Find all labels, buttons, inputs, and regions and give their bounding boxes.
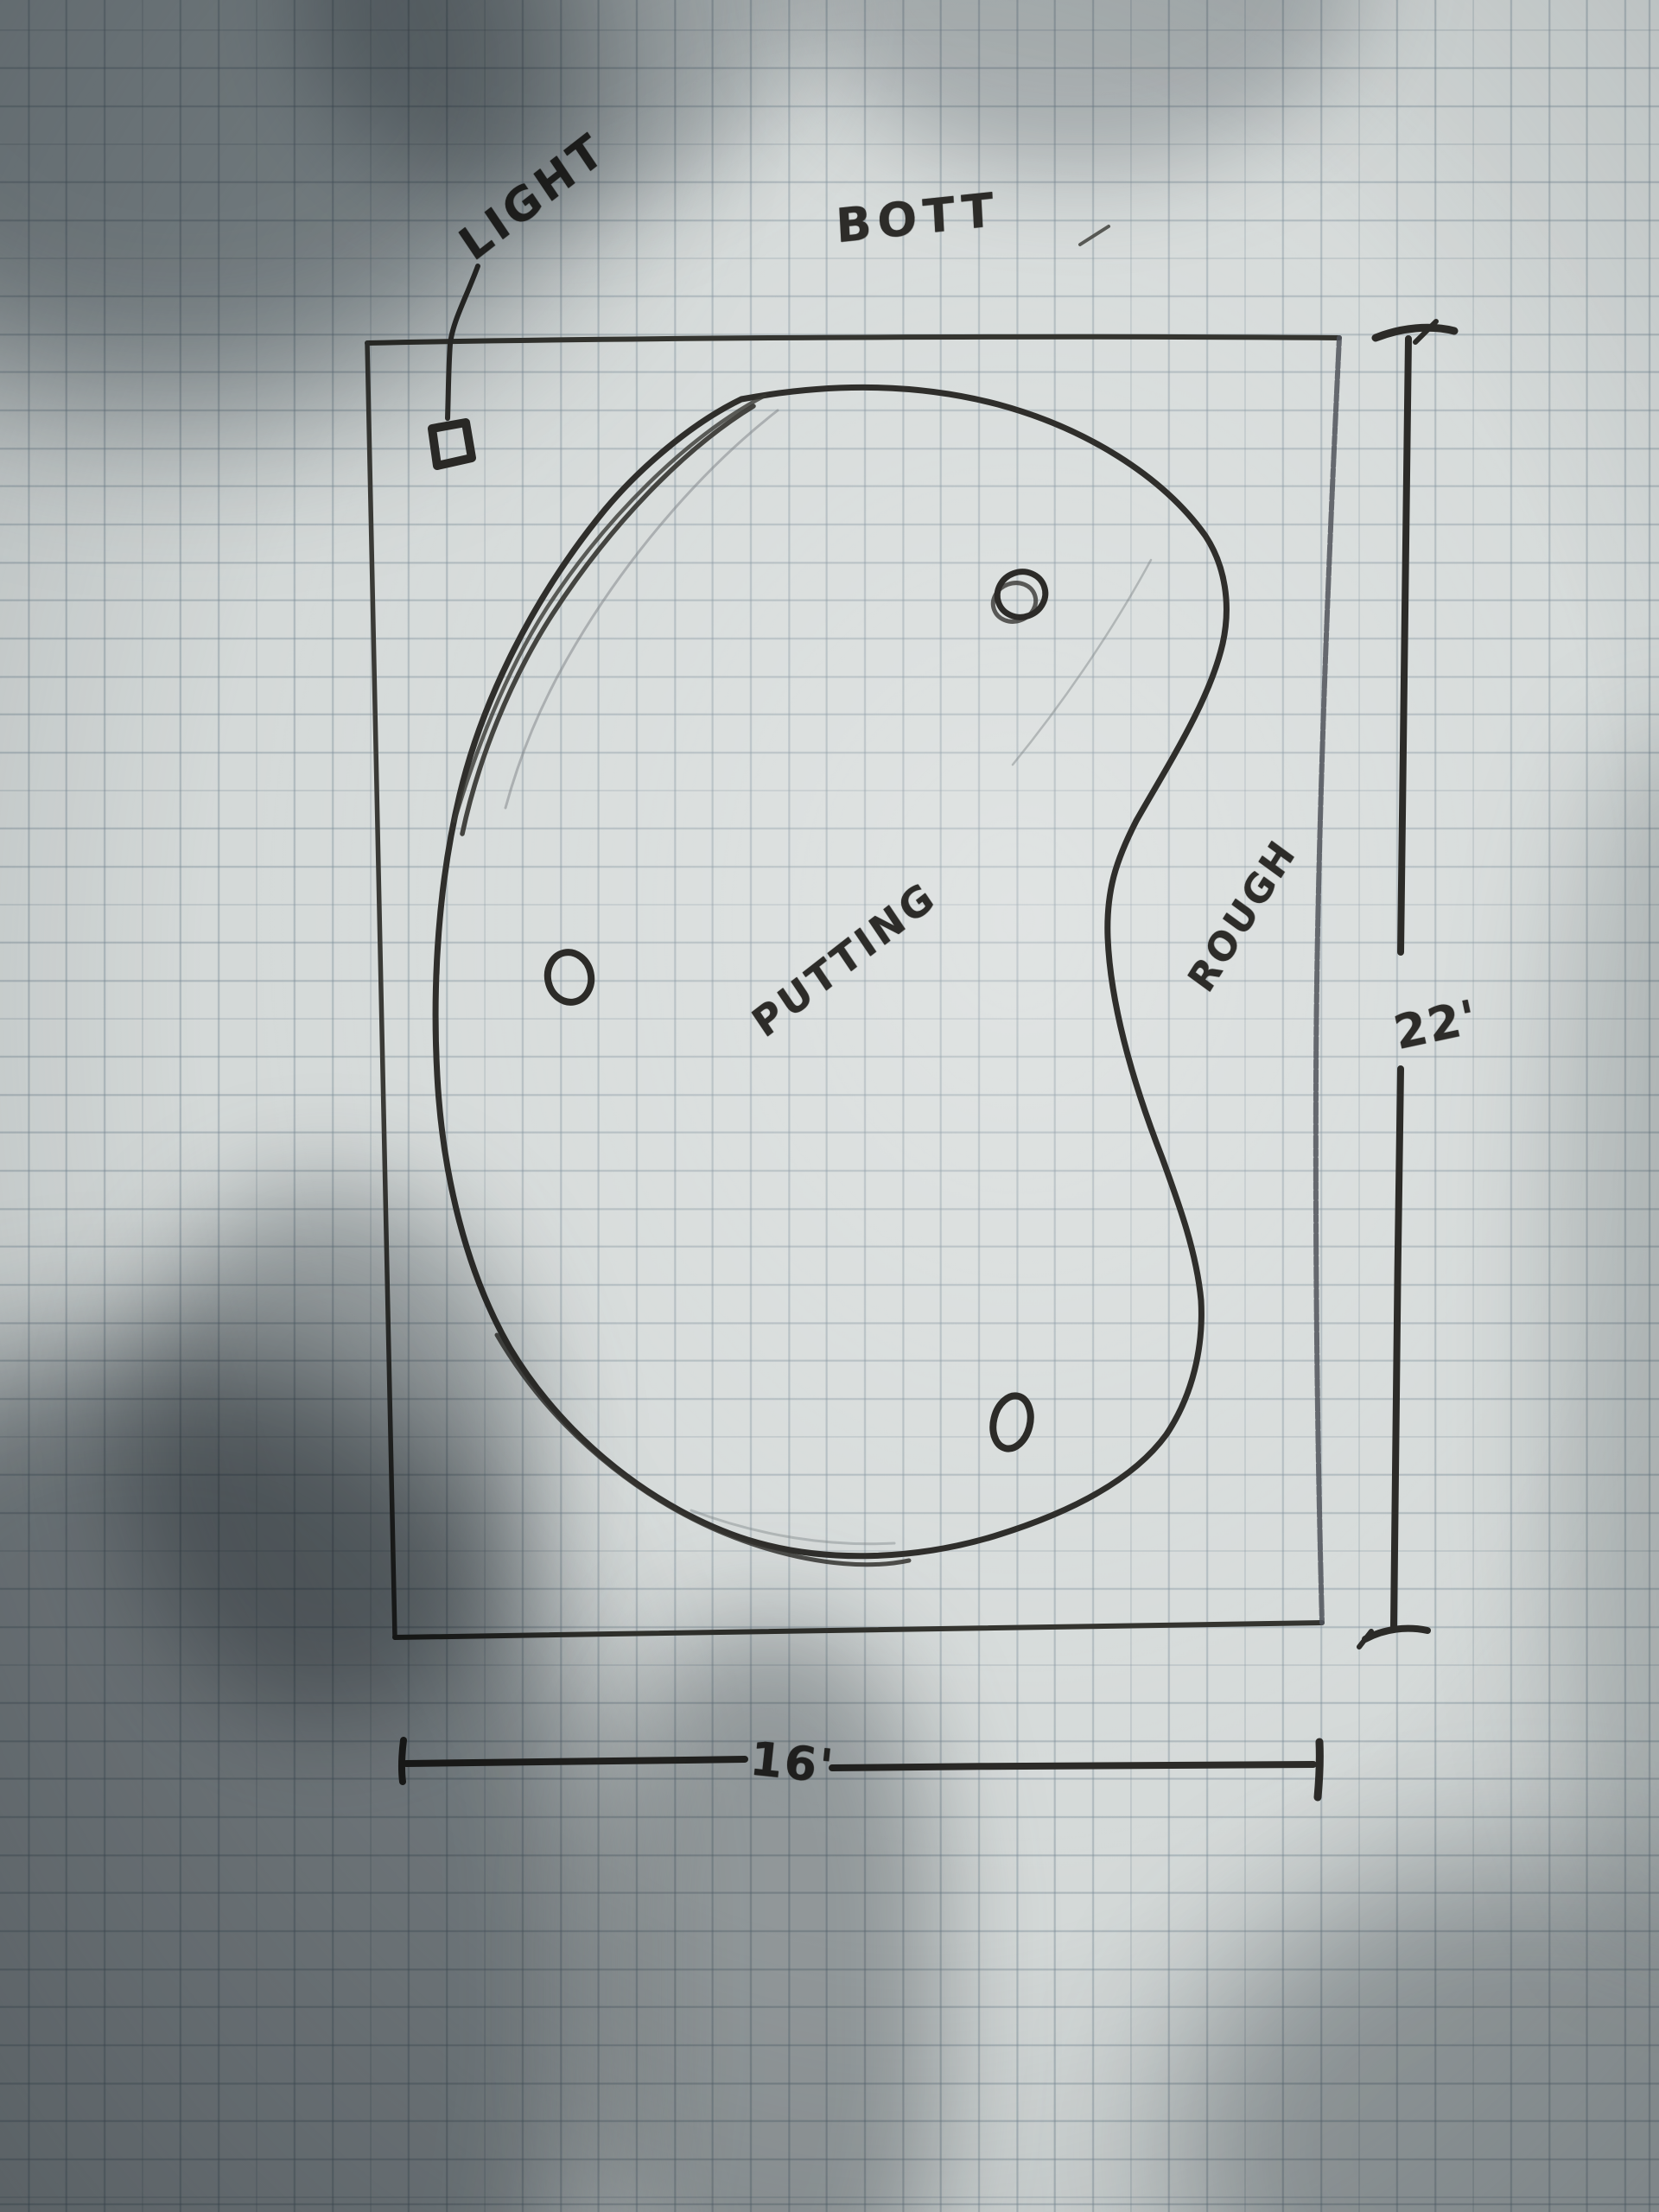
dim-height-tick-top — [1376, 327, 1454, 338]
pencil-guide-bottom — [691, 1510, 894, 1544]
boundary-right-edge-pencil — [1316, 338, 1339, 1623]
light-marker-square — [432, 423, 472, 466]
boundary-left-edge — [367, 343, 395, 1637]
boundary-top-edge — [367, 337, 1339, 343]
dim-width-line-right — [832, 1764, 1313, 1768]
green-outline-retrace-2 — [454, 396, 765, 821]
boundary-bottom-edge — [395, 1623, 1322, 1637]
dim-width-label: 16' — [747, 1732, 837, 1795]
green-outline-retrace-bottom — [497, 1335, 909, 1565]
photo-of-sketch: LIGHT BOTT PUTTING ROUGH 22' 16' — [0, 0, 1659, 2212]
dim-height-tick-bottom — [1365, 1629, 1427, 1639]
dim-height-line-lower — [1394, 1069, 1401, 1626]
stray-mark — [1080, 226, 1109, 245]
hole-bottom — [988, 1392, 1036, 1452]
dim-height-line-upper — [1401, 339, 1408, 952]
sketch-ink-layer — [0, 0, 1659, 2212]
hole-left — [543, 948, 596, 1006]
hole-top-right — [988, 565, 1052, 627]
dim-width-line-left — [406, 1759, 745, 1764]
dim-width-tick-right — [1318, 1742, 1319, 1797]
dim-width-tick-left — [402, 1740, 404, 1782]
